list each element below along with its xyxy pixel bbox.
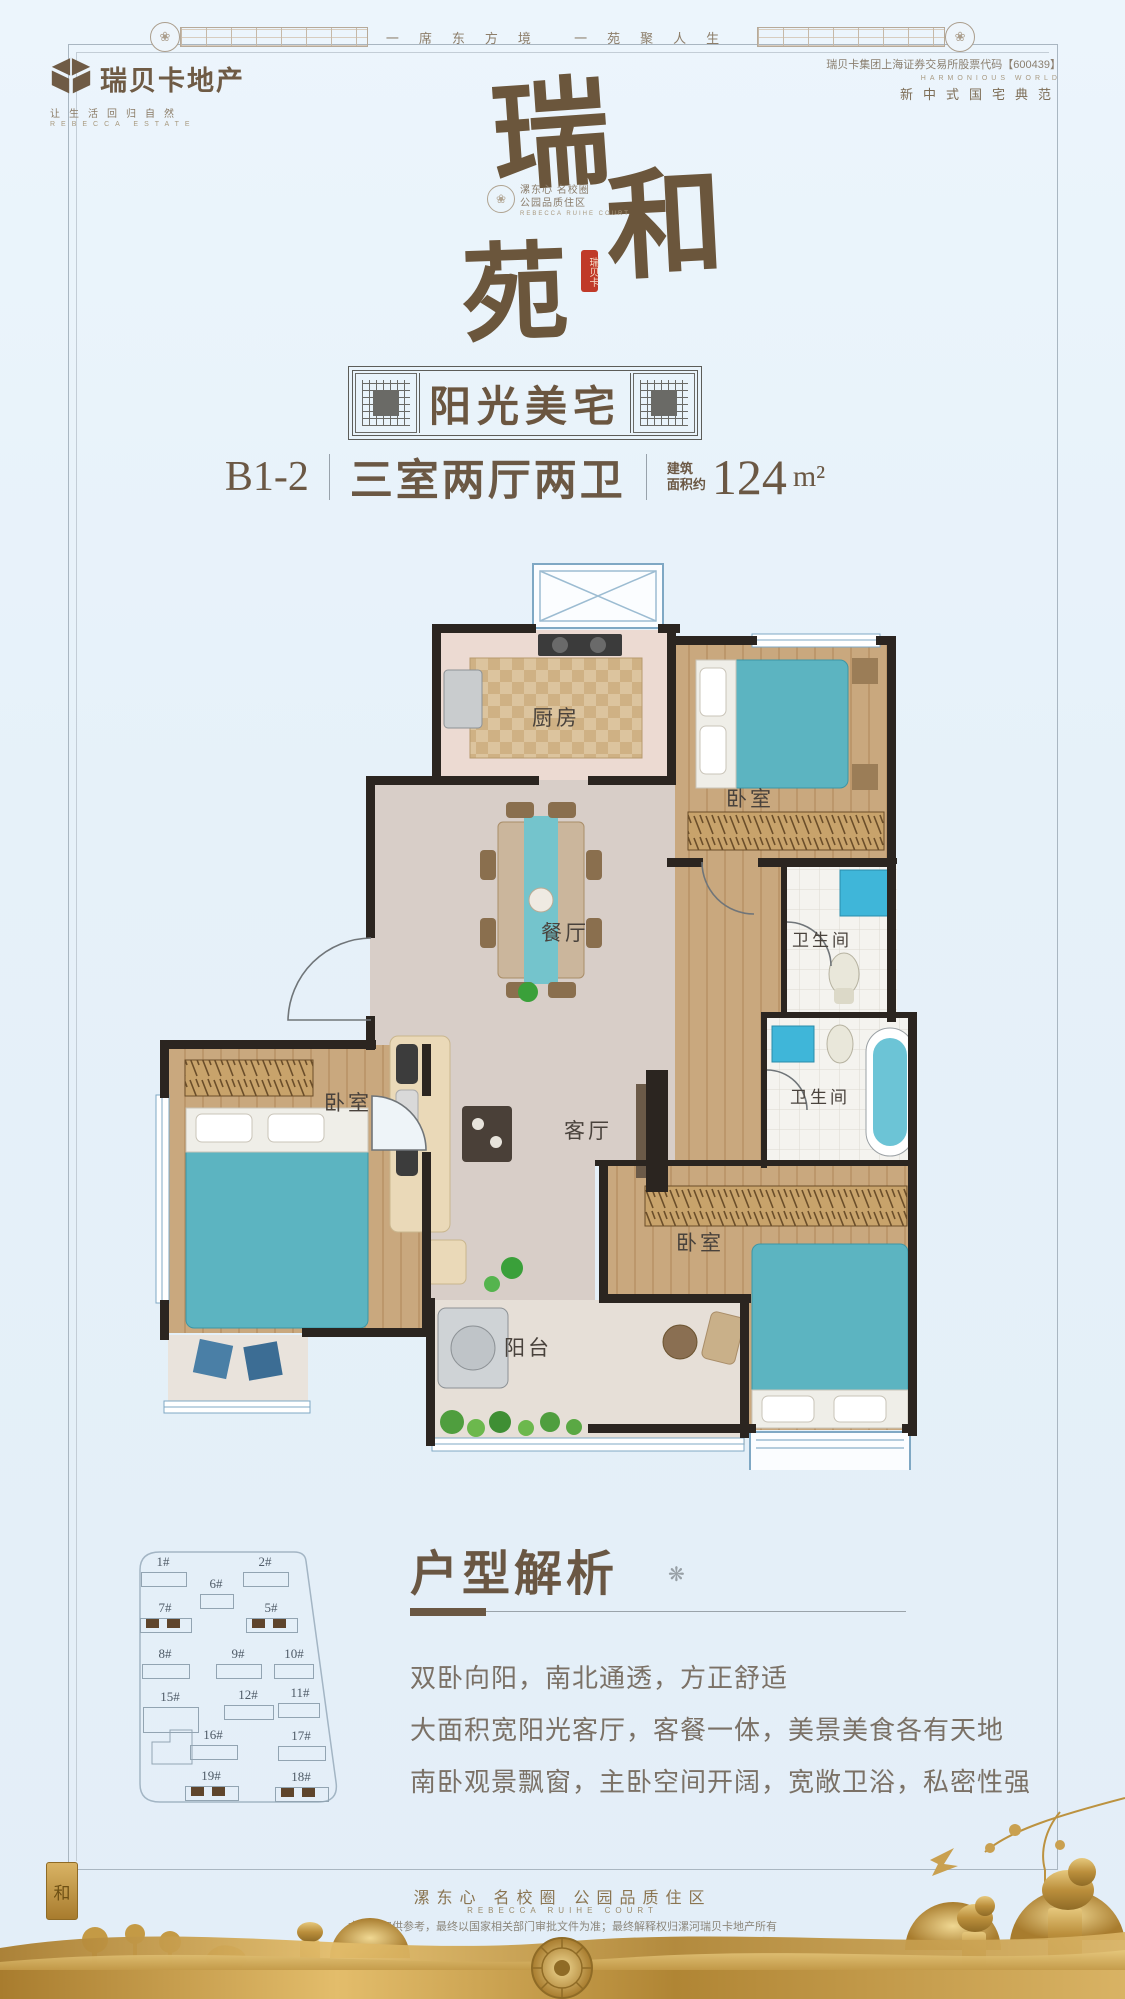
sink-lower (772, 1026, 814, 1062)
footer-disclaimer: 本资料仅供参考，最终以国家相关部门审批文件为准；最终解释权归漯河瑞贝卡地产所有 (0, 1918, 1125, 1934)
building-shape (278, 1746, 326, 1761)
band-tagline: 一席东方境 一苑聚人生 (368, 28, 757, 47)
label-living: 客厅 (564, 1120, 612, 1143)
brand-sub-line1: 漯东心 名校圈 (520, 185, 630, 198)
building-shape (278, 1703, 320, 1718)
label-dining: 餐厅 (541, 922, 589, 945)
building-label: 16# (195, 1727, 231, 1743)
building-shape (274, 1664, 314, 1679)
brand-sub-line2: 公园品质住区 (520, 198, 630, 211)
logo-name: 瑞贝卡地产 (100, 59, 245, 98)
analysis-ornament-icon: ❋ (668, 1562, 685, 1587)
banner-title: 阳光美宅 (429, 373, 621, 434)
flower-medallion-icon: ❀ (150, 22, 180, 52)
building-shape (141, 1572, 187, 1587)
developer-logo: 瑞贝卡地产 让生活回归自然 REBECCA ESTATE (50, 56, 310, 128)
building-label: 10# (276, 1646, 312, 1662)
label-bedroom-south: 卧室 (676, 1232, 724, 1255)
gold-emblem: 和 (46, 1862, 78, 1920)
building-shape (200, 1594, 234, 1609)
harmonious-world-line: HARMONIOUS WORLD (826, 75, 1061, 82)
building-label: 15# (152, 1689, 188, 1705)
area-prefix-1: 建筑 (667, 461, 706, 477)
siteplan: 1# 2# 6# 7# 5# 8# 9# 10# 15# 12# 11# 16#… (128, 1546, 348, 1814)
area-prefix-2: 面积约 (667, 477, 706, 493)
building-shape (143, 1707, 199, 1733)
building-label: 9# (220, 1646, 256, 1662)
kitchen-sink (444, 670, 482, 728)
brand-subtitle-block: ❀ 漯东心 名校圈 公园品质住区 REBECCA RUIHE COURT (487, 185, 630, 219)
brand-char-2: 和 (603, 165, 727, 289)
label-bath-lower: 卫生间 (790, 1088, 850, 1107)
label-bedroom-north: 卧室 (726, 788, 774, 811)
bay-seat-floor (168, 1335, 308, 1401)
footer-slogan: 漯东心 名校圈 公园品质住区 (0, 1884, 1125, 1908)
footer-slogan-en: REBECCA RUIHE COURT (0, 1906, 1125, 1915)
building-shape (190, 1745, 238, 1760)
red-seal: 瑞贝卡 (581, 250, 598, 292)
motto-line: 新中式国宅典范 (826, 84, 1061, 103)
header-right-block: 瑞贝卡集团上海证券交易所股票代码【600439】 HARMONIOUS WORL… (826, 56, 1061, 103)
top-ornament-band: ❀ 一席东方境 一苑聚人生 ❀ (150, 24, 975, 50)
flower-medallion-icon: ❀ (945, 22, 975, 52)
fret-pattern-strip (757, 27, 945, 47)
logo-slogan: 让生活回归自然 (50, 105, 310, 120)
building-label: 8# (147, 1646, 183, 1662)
unit-summary: B1-2 三室两厅两卫 建筑 面积约 124 m² (0, 446, 1050, 508)
wardrobe-north (688, 812, 884, 850)
section-banner: 阳光美宅 (348, 366, 702, 440)
banner-fret-icon (633, 373, 695, 433)
building-label: 5# (253, 1600, 289, 1616)
area-unit: m² (793, 460, 825, 494)
brand-char-1: 瑞 (488, 74, 614, 200)
brand-char-3: 苑 (460, 240, 570, 350)
pillow (243, 1341, 282, 1380)
wardrobe-west (185, 1060, 313, 1096)
tv-wall (646, 1070, 668, 1192)
title-underline-thick (410, 1608, 486, 1616)
building-label: 17# (283, 1728, 319, 1744)
building-shape (142, 1664, 190, 1679)
logo-slogan-en: REBECCA ESTATE (50, 121, 310, 128)
gold-medallion (532, 1938, 592, 1998)
fret-pattern-strip (180, 27, 368, 47)
building-shape-highlighted (246, 1618, 298, 1633)
label-bedroom-west: 卧室 (324, 1092, 372, 1115)
gold-ribbon (0, 1932, 1125, 1999)
label-bath-upper: 卫生间 (792, 931, 852, 950)
stock-code-line: 瑞贝卡集团上海证券交易所股票代码【600439】 (826, 56, 1061, 72)
divider (329, 454, 330, 500)
gold-base-band (0, 1970, 1125, 1999)
title-underline-thin (486, 1611, 906, 1612)
gold-ribbon (0, 1950, 1125, 1999)
brand-ornament-icon: ❀ (487, 185, 515, 213)
unit-code: B1-2 (225, 453, 309, 501)
building-shape-highlighted (185, 1786, 239, 1801)
analysis-line: 大面积宽阳光客厅，客餐一体，美景美食各有天地 (410, 1710, 970, 1747)
building-shape (224, 1705, 274, 1720)
armchair (426, 1240, 466, 1284)
building-label: 6# (198, 1576, 234, 1592)
pillow (193, 1339, 233, 1379)
building-label: 7# (147, 1600, 183, 1616)
building-shape (243, 1572, 289, 1587)
label-kitchen: 厨房 (532, 707, 580, 730)
building-label: 2# (247, 1554, 283, 1570)
divider (646, 454, 647, 500)
label-balcony: 阳台 (504, 1337, 552, 1360)
analysis-title: 户型解析 (410, 1534, 618, 1604)
building-label: 18# (283, 1769, 319, 1785)
shower (840, 870, 892, 916)
building-shape-highlighted (275, 1787, 329, 1802)
area-value: 124 (712, 448, 787, 506)
toilet-lower (827, 1025, 853, 1063)
building-shape (216, 1664, 262, 1679)
coffee-table (462, 1106, 512, 1162)
building-label: 19# (193, 1768, 229, 1784)
analysis-line: 南卧观景飘窗，主卧空间开阔，宽敞卫浴，私密性强 (410, 1762, 970, 1799)
stove (538, 634, 622, 656)
poster-page: ❀ 一席东方境 一苑聚人生 ❀ 瑞贝卡地产 让生活回归自然 REBECCA ES… (0, 0, 1125, 1999)
tea-table (663, 1325, 697, 1359)
building-shape-highlighted (140, 1618, 192, 1633)
building-label: 12# (230, 1687, 266, 1703)
wardrobe-south (645, 1186, 907, 1226)
logo-cube-icon (50, 56, 92, 101)
building-label: 1# (145, 1554, 181, 1570)
nightstand (852, 764, 878, 790)
nightstand (852, 658, 878, 684)
floorplan: 厨房 卧室 餐厅 卫生间 客厅 卫生间 卧室 卧室 阳台 (140, 550, 930, 1470)
analysis-line: 双卧向阳，南北通透，方正舒适 (410, 1658, 970, 1695)
building-label: 11# (282, 1685, 318, 1701)
unit-layout: 三室两厅两卫 (350, 446, 626, 508)
banner-fret-icon (355, 373, 417, 433)
brand-sub-en: REBECCA RUIHE COURT (520, 211, 630, 219)
